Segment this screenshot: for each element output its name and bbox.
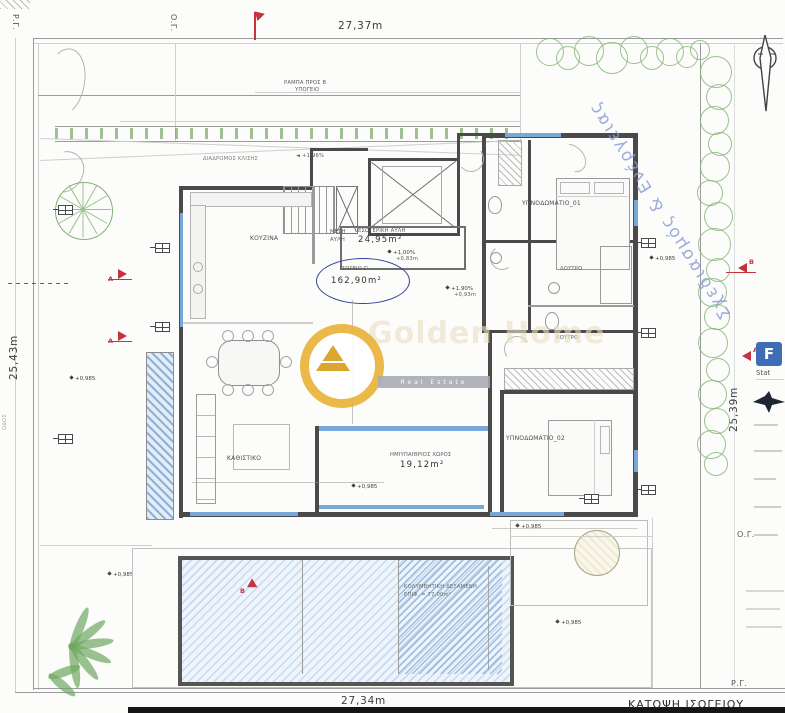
kitchen-hob	[193, 284, 203, 294]
wall-bath-divider	[528, 140, 531, 332]
window-bottom-1	[190, 512, 298, 516]
glass-semi-top	[319, 426, 488, 431]
side-ramp-hatch	[146, 352, 174, 520]
chair	[280, 356, 292, 368]
window-symbol	[155, 322, 170, 332]
driveway-label: ΔΙΑΔΡΟΜΟΣ ΚΛΙΣΗΣ	[203, 156, 258, 162]
label-atrium-side2: ΑΥΛΗ	[330, 237, 345, 243]
pool-divider-1	[302, 560, 303, 674]
side-panel: F Stat	[752, 338, 785, 648]
spot-level: +0,985	[70, 376, 95, 382]
brand-logo-ring	[300, 324, 384, 408]
section-marker-a-left1: A	[108, 266, 113, 285]
wall-kitchen-right	[312, 186, 315, 264]
boundary-right	[700, 43, 701, 688]
tree	[698, 278, 727, 307]
ramp-dim-line	[255, 92, 520, 93]
window-right-2	[634, 450, 638, 472]
wall-semi-right	[488, 332, 492, 512]
dining-table	[218, 340, 280, 386]
window-symbol	[584, 494, 599, 504]
dim-top: 27,37m	[338, 20, 383, 32]
pool-label-2: ΕΠΙΦ. = 77,00m²	[404, 592, 451, 598]
brand-logo-triangle	[316, 345, 350, 371]
grid-label-pg-top: Ρ.Γ.	[11, 14, 20, 30]
planting-strip	[55, 128, 520, 139]
bed-1-pillow	[560, 182, 590, 194]
grid-label-pg-bottom: Ρ.Γ.	[731, 679, 747, 688]
building-line-right	[734, 45, 735, 688]
tree	[698, 380, 727, 409]
tree	[700, 152, 730, 182]
pool-label-1: ΚΟΛΥΜΒΗΤΙΚΗ ΔΕΞΑΜΕΝΗ	[404, 584, 477, 590]
brand-bar: Real Estate	[378, 376, 490, 388]
ramp-label-line1: ΡΑΜΠΑ ΠΡΟΣ Β	[284, 80, 326, 86]
dim-right: 25,39m	[728, 387, 740, 432]
chair	[262, 384, 274, 396]
window-bottom-2	[490, 512, 564, 516]
brand-ghost-text: Golden Home	[368, 316, 605, 351]
tree	[698, 328, 728, 358]
driveway-vline-2	[520, 44, 521, 140]
terrace-line-h	[510, 536, 652, 537]
yard-line	[40, 545, 152, 546]
kitchen-sink	[193, 262, 203, 272]
corner-hatch	[0, 0, 30, 9]
driveway-line-1	[38, 95, 520, 96]
tree	[706, 358, 730, 382]
driveway-line-2	[120, 121, 520, 122]
wall-kitchen-bottom	[181, 322, 313, 324]
spot-level: +0,985	[650, 256, 675, 262]
grade-marker-2b: +0,93m	[454, 292, 476, 298]
dim-line-h1	[192, 482, 384, 483]
tree	[700, 106, 729, 135]
closet-hatch	[504, 368, 634, 390]
dim-bottom: 27,34m	[341, 695, 386, 707]
living-rug	[233, 424, 290, 470]
brand-bar-text: Real Estate	[401, 379, 468, 386]
bed-2-pillow	[600, 426, 610, 454]
window-symbol	[155, 243, 170, 253]
entry-closet-hatch	[498, 140, 522, 186]
elevator-inner	[382, 166, 442, 224]
section-marker-b-pool: B	[240, 578, 245, 597]
wall-stair-left	[310, 148, 313, 190]
area-semi: 19,12m²	[400, 460, 444, 470]
chair	[242, 330, 254, 342]
chair	[262, 330, 274, 342]
label-bath1: ΛΟΥΤΡΟ	[560, 266, 582, 272]
label-semi: ΗΜΙΥΠΑΙΘΡΙΟΣ ΧΩΡΟΣ	[390, 452, 451, 458]
grid-label-og-top: Ο.Γ.	[169, 14, 178, 32]
wall-stair-top	[310, 148, 368, 151]
pool-dim-line	[488, 566, 489, 670]
brand-logo-stripe	[321, 361, 345, 363]
label-ground: ΙΣΟΓΕΙΟ Γ'	[340, 266, 369, 272]
panel-text-line	[754, 424, 778, 426]
window-bedroom1-top	[505, 133, 561, 137]
sofa	[196, 394, 216, 504]
bed-2-line	[594, 420, 595, 494]
panel-text-line	[754, 534, 778, 536]
panel-text-line	[746, 626, 782, 628]
spot-level: +0,985	[108, 572, 133, 578]
plan-title: ΚΑΤΟΨΗ ΙΣΟΓΕΙΟΥ	[628, 698, 744, 711]
wall-entry-top	[457, 133, 485, 136]
pool-divider-2	[398, 560, 399, 674]
dim-left: 25,43m	[8, 335, 20, 380]
window-left-wall	[180, 213, 183, 327]
tree	[698, 228, 731, 261]
glass-semi-bottom	[319, 505, 484, 509]
section-letter: B	[240, 587, 245, 595]
chair	[222, 384, 234, 396]
gate-arc-1	[39, 45, 90, 119]
area-ground: 162,90m²	[331, 276, 382, 286]
chair	[222, 330, 234, 342]
window-symbol	[641, 485, 656, 495]
sink-2	[548, 282, 560, 294]
tree	[690, 40, 710, 60]
tree	[704, 452, 728, 476]
tree	[704, 202, 733, 231]
chair	[242, 384, 254, 396]
slope-value: +1,96%	[302, 153, 324, 159]
panel-text-line	[754, 506, 781, 508]
section-dash-left	[8, 283, 70, 284]
section-marker-a-left2: A	[108, 328, 113, 347]
planting-strip-top	[55, 126, 520, 127]
kitchen-counter-top	[190, 192, 312, 207]
bed-1-pillow2	[594, 182, 624, 194]
panel-caption: Stat	[756, 369, 770, 377]
north-arrow-icon	[750, 32, 782, 118]
panel-text-line	[754, 450, 782, 452]
wall-bedroom2-left	[500, 390, 504, 512]
sink-1	[490, 252, 502, 264]
label-atrium: ΕΣΩΤΕΡΙΚΗ ΑΥΛΗ	[358, 228, 406, 234]
panel-text-line	[746, 590, 784, 592]
panel-logo: F	[756, 342, 782, 366]
chair	[206, 356, 218, 368]
panel-rule	[756, 379, 784, 380]
spot-level: +0,985	[352, 484, 377, 490]
window-symbol	[58, 205, 73, 215]
label-bedroom1: ΥΠΝΟΔΩΜΑΤΙΟ_01	[522, 200, 581, 207]
diagonal-watermark-wrap: Σχεδιασμός & Ενέργειας	[495, 60, 785, 360]
dresser-arc	[552, 138, 592, 178]
bed-1-line	[556, 196, 628, 197]
window-symbol	[641, 328, 656, 338]
street-label: ΟΔΟΣ	[2, 414, 8, 430]
panel-text-line	[746, 608, 780, 610]
window-symbol	[641, 238, 656, 248]
section-flag-b-top	[255, 9, 266, 21]
bathtub	[600, 246, 632, 304]
door-arc-entry	[457, 145, 485, 173]
tree	[704, 304, 730, 330]
area-atrium: 24,95m²	[358, 235, 402, 245]
label-bedroom2: ΥΠΝΟΔΩΜΑΤΙΟ_02	[506, 435, 565, 442]
label-atrium-side1: ΜΕΣΗ	[330, 229, 346, 235]
label-kitchen: ΚΟΥΖΙΝΑ	[250, 235, 278, 242]
floor-plan-canvas: Ρ.Γ. Ο.Γ. Ο.Γ. Ρ.Γ. 27,37m 27,34m 25,43m…	[0, 0, 785, 713]
toilet-1	[488, 196, 502, 214]
wall-bath-h2	[528, 305, 634, 307]
window-symbol	[58, 434, 73, 444]
wall-semi-left	[315, 426, 319, 512]
panel-icon	[752, 390, 785, 418]
wall-bedroom2-top	[500, 390, 634, 394]
window-right-1	[634, 200, 638, 226]
grade-marker-1b: +0,83m	[396, 256, 418, 262]
label-living: ΚΑΘΙΣΤΙΚΟ	[227, 455, 261, 462]
panel-text-line	[754, 478, 776, 480]
pool-dense-hatch	[398, 560, 502, 674]
terrace-line-v	[652, 518, 653, 688]
section-letter: B	[749, 258, 754, 266]
